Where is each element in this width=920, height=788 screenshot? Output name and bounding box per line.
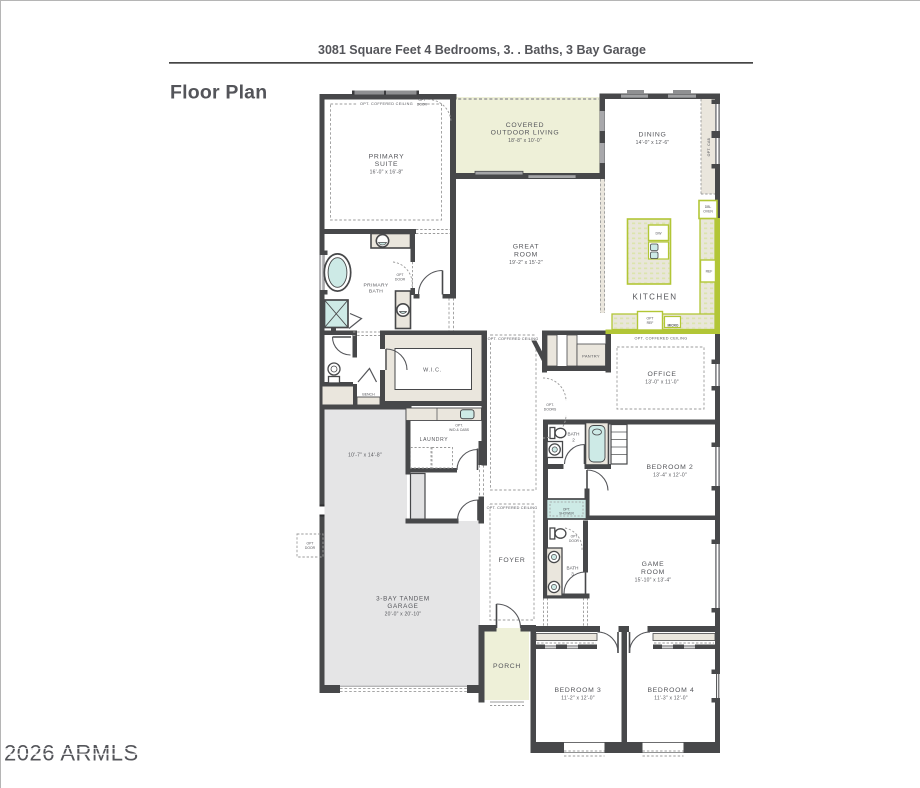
svg-text:COVERED: COVERED: [506, 122, 545, 129]
svg-text:OPT: OPT: [397, 273, 404, 277]
svg-text:16'-0" x 16'-8": 16'-0" x 16'-8": [370, 170, 404, 176]
svg-text:W.I.C.: W.I.C.: [423, 368, 442, 374]
svg-text:BENCH: BENCH: [362, 393, 375, 397]
svg-text:13'-4" x 12'-0": 13'-4" x 12'-0": [653, 473, 687, 479]
svg-text:11'-2" x 12'-0": 11'-2" x 12'-0": [561, 696, 594, 702]
svg-text:PRIMARY: PRIMARY: [369, 154, 405, 161]
svg-text:LAUNDRY: LAUNDRY: [420, 437, 449, 443]
svg-text:10'-7" x 14'-8": 10'-7" x 14'-8": [348, 453, 382, 459]
svg-text:KITCHEN: KITCHEN: [633, 293, 678, 302]
svg-text:3081 Square Feet 4 Bedrooms, 3: 3081 Square Feet 4 Bedrooms, 3. . Baths,…: [318, 43, 646, 57]
svg-text:OPT: OPT: [571, 535, 578, 539]
svg-text:3-BAY TANDEM: 3-BAY TANDEM: [376, 596, 430, 603]
svg-text:OFFICE: OFFICE: [647, 371, 676, 378]
svg-text:OPT.: OPT.: [455, 424, 463, 428]
svg-text:BEDROOM 2: BEDROOM 2: [646, 464, 693, 471]
svg-text:SHOWER: SHOWER: [559, 512, 574, 516]
svg-text:BATH: BATH: [567, 566, 579, 571]
svg-text:BEDROOM 3: BEDROOM 3: [554, 687, 601, 694]
svg-text:OPT. COFFERED CEILING: OPT. COFFERED CEILING: [360, 102, 413, 106]
svg-text:BATH: BATH: [369, 289, 383, 295]
svg-text:OPT. CAB: OPT. CAB: [707, 137, 711, 156]
svg-text:BATH: BATH: [568, 432, 580, 437]
svg-text:OPT.: OPT.: [546, 403, 554, 407]
svg-text:GARAGE: GARAGE: [387, 603, 418, 610]
svg-text:MICRO: MICRO: [668, 324, 679, 328]
svg-text:11'-3" x 12'-0": 11'-3" x 12'-0": [654, 696, 687, 702]
svg-text:OPT. COFFERED CEILING: OPT. COFFERED CEILING: [635, 336, 688, 340]
svg-text:OVEN: OVEN: [703, 210, 713, 214]
svg-text:18'-8" x 10'-0": 18'-8" x 10'-0": [508, 138, 542, 144]
svg-text:PRIMARY: PRIMARY: [364, 283, 389, 289]
svg-text:GAME: GAME: [642, 561, 665, 568]
svg-text:DOORS: DOORS: [544, 408, 557, 412]
svg-text:DOOR: DOOR: [417, 103, 428, 107]
svg-text:3: 3: [571, 572, 574, 577]
svg-text:Floor Plan: Floor Plan: [170, 82, 267, 104]
svg-text:OPT. COFFERED CEILING: OPT. COFFERED CEILING: [488, 337, 539, 341]
svg-text:14'-0" x 12'-6": 14'-0" x 12'-6": [636, 140, 670, 146]
svg-text:GREAT: GREAT: [513, 244, 539, 251]
svg-text:2: 2: [572, 438, 575, 443]
svg-text:BEDROOM 4: BEDROOM 4: [647, 687, 694, 694]
svg-text:DOOR: DOOR: [305, 546, 316, 550]
svg-text:19'-2" x 15'-2": 19'-2" x 15'-2": [509, 260, 543, 266]
svg-text:13'-0" x 11'-0": 13'-0" x 11'-0": [645, 380, 678, 386]
svg-text:REF: REF: [647, 321, 654, 325]
svg-text:REF: REF: [706, 270, 713, 274]
svg-text:PANTRY: PANTRY: [582, 354, 600, 359]
svg-text:ROOM: ROOM: [641, 569, 665, 576]
svg-text:DOOR: DOOR: [569, 539, 580, 543]
svg-text:PORCH: PORCH: [493, 663, 521, 670]
svg-text:OPT: OPT: [307, 542, 314, 546]
svg-text:OPT: OPT: [647, 317, 654, 321]
svg-text:SUITE: SUITE: [375, 161, 399, 168]
svg-text:OPT. COFFERED CEILING: OPT. COFFERED CEILING: [487, 506, 538, 510]
svg-text:DINING: DINING: [639, 132, 667, 139]
svg-text:OPT: OPT: [419, 98, 426, 102]
svg-text:15'-10" x 13'-4": 15'-10" x 13'-4": [635, 578, 672, 584]
svg-text:FOYER: FOYER: [499, 557, 526, 564]
svg-text:DW: DW: [656, 232, 663, 236]
svg-text:DOOR: DOOR: [395, 278, 406, 282]
svg-text:DBL: DBL: [705, 205, 712, 209]
svg-text:OUTDOOR LIVING: OUTDOOR LIVING: [491, 130, 560, 137]
svg-text:W/D & CABS: W/D & CABS: [449, 428, 470, 432]
svg-text:20'-0" x 20'-10": 20'-0" x 20'-10": [385, 612, 422, 618]
svg-text:2026 ARMLS: 2026 ARMLS: [4, 741, 139, 766]
svg-text:ROOM: ROOM: [514, 252, 538, 259]
